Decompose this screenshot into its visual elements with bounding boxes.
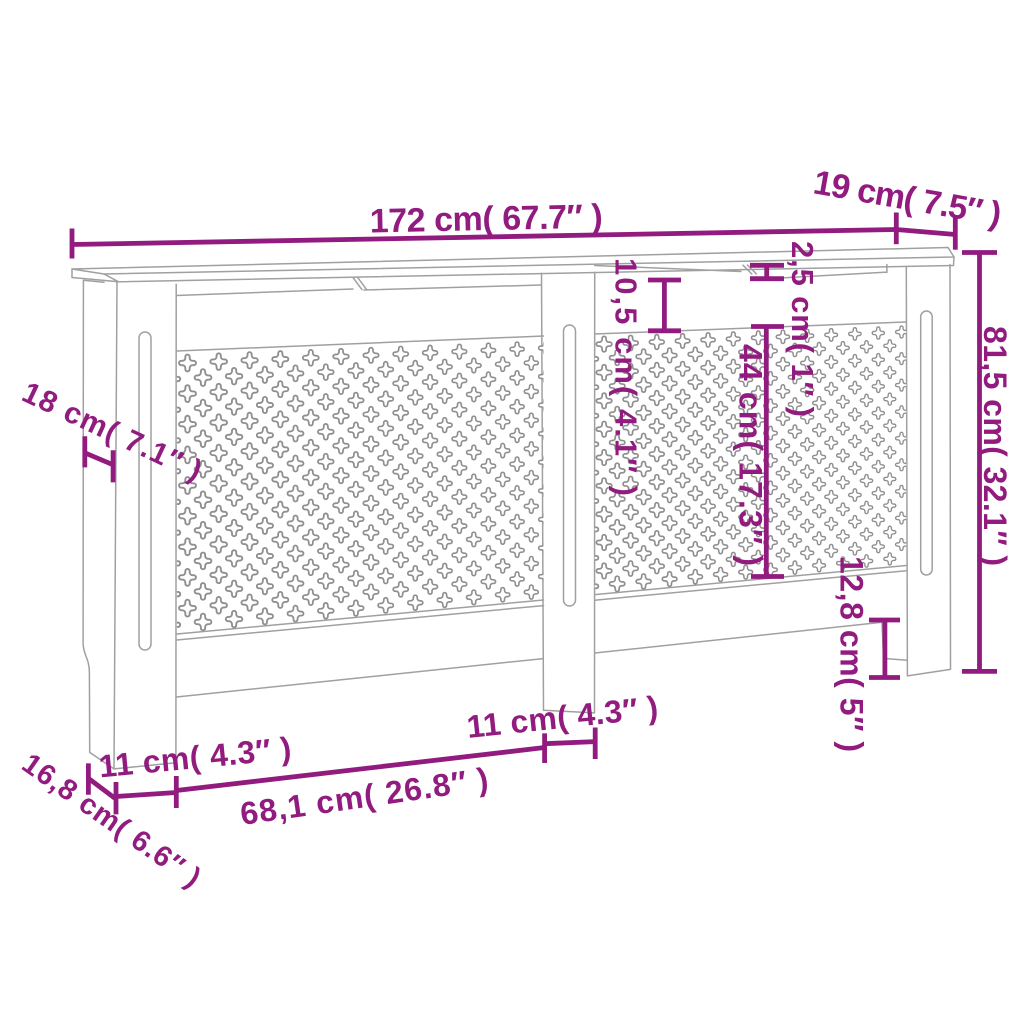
svg-text:172 cm( 67.7″ ): 172 cm( 67.7″ ) [369,198,603,241]
svg-text:10,5 cm( 4.1″ ): 10,5 cm( 4.1″ ) [609,258,644,496]
svg-text:12,8 cm( 5″ ): 12,8 cm( 5″ ) [834,556,870,752]
svg-text:44 cm( 17.3″ ): 44 cm( 17.3″ ) [733,344,769,566]
svg-text:2,5 cm( 1″ ): 2,5 cm( 1″ ) [785,241,820,417]
svg-text:81,5 cm( 32.1″ ): 81,5 cm( 32.1″ ) [977,326,1013,566]
